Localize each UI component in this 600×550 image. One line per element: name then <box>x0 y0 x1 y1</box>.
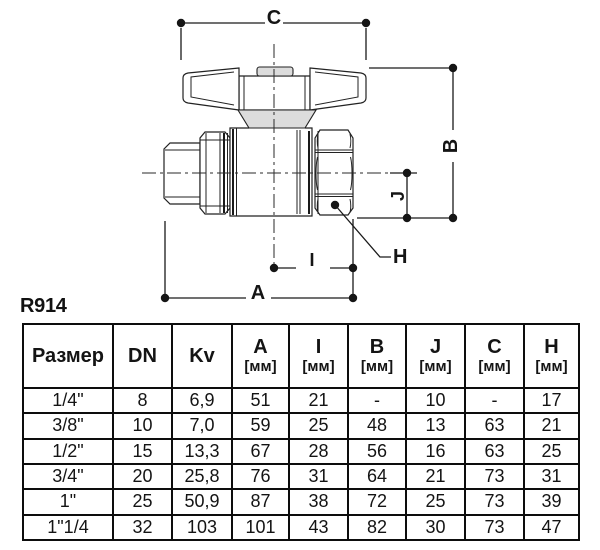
dim-label-b: B <box>440 139 462 153</box>
table-cell: 17 <box>524 388 579 413</box>
column-header: I[мм] <box>289 324 348 388</box>
column-header-unit: [мм] <box>407 359 464 375</box>
table-cell: 1"1/4 <box>23 515 113 540</box>
table-row: 1"2550,9873872257339 <box>23 489 579 514</box>
column-header: Размер <box>23 324 113 388</box>
column-header-label: DN <box>114 346 171 366</box>
column-header-label: Размер <box>24 346 112 366</box>
table-cell: 39 <box>524 489 579 514</box>
spec-table: РазмерDNKvA[мм]I[мм]B[мм]J[мм]C[мм]H[мм]… <box>22 323 580 541</box>
column-header-unit: [мм] <box>466 359 523 375</box>
table-cell: 1/2" <box>23 439 113 464</box>
table-cell: 50,9 <box>172 489 232 514</box>
spec-table-head: РазмерDNKvA[мм]I[мм]B[мм]J[мм]C[мм]H[мм] <box>23 324 579 388</box>
valve-outline <box>164 67 366 216</box>
valve-datasheet: C B J I A H R914 РазмерDNKvA[мм]I[мм]B[м… <box>0 0 600 550</box>
column-header: B[мм] <box>348 324 406 388</box>
table-cell: 25 <box>289 413 348 438</box>
table-row: 1"1/4321031014382307347 <box>23 515 579 540</box>
table-cell: 21 <box>289 388 348 413</box>
table-cell: 73 <box>465 489 524 514</box>
table-cell: 13 <box>406 413 465 438</box>
column-header-label: I <box>290 337 347 357</box>
table-cell: 15 <box>113 439 172 464</box>
table-cell: 6,9 <box>172 388 232 413</box>
valve-technical-drawing: C B J I A H <box>0 0 600 322</box>
table-cell: 3/8" <box>23 413 113 438</box>
table-cell: 10 <box>113 413 172 438</box>
column-header-label: Kv <box>173 346 231 366</box>
table-cell: 47 <box>524 515 579 540</box>
table-cell: 73 <box>465 515 524 540</box>
table-cell: 101 <box>232 515 289 540</box>
table-cell: 64 <box>348 464 406 489</box>
table-cell: 82 <box>348 515 406 540</box>
column-header-label: A <box>233 337 288 357</box>
table-cell: 13,3 <box>172 439 232 464</box>
table-cell: 38 <box>289 489 348 514</box>
table-cell: 21 <box>524 413 579 438</box>
dim-label-a: A <box>251 282 265 304</box>
table-cell: 3/4" <box>23 464 113 489</box>
handle-cap <box>257 67 293 76</box>
table-cell: 51 <box>232 388 289 413</box>
column-header-unit: [мм] <box>233 359 288 375</box>
column-header: C[мм] <box>465 324 524 388</box>
column-header-unit: [мм] <box>525 359 578 375</box>
column-header: DN <box>113 324 172 388</box>
column-header-label: B <box>349 337 405 357</box>
header-row: РазмерDNKvA[мм]I[мм]B[мм]J[мм]C[мм]H[мм] <box>23 324 579 388</box>
table-row: 3/4"2025,8763164217331 <box>23 464 579 489</box>
column-header-label: C <box>466 337 523 357</box>
dim-label-h: H <box>393 246 407 268</box>
column-header: H[мм] <box>524 324 579 388</box>
table-cell: 16 <box>406 439 465 464</box>
table-cell: 25 <box>113 489 172 514</box>
table-cell: 67 <box>232 439 289 464</box>
table-cell: 87 <box>232 489 289 514</box>
table-cell: 30 <box>406 515 465 540</box>
product-code: R914 <box>20 295 67 318</box>
table-cell: 31 <box>524 464 579 489</box>
column-header: A[мм] <box>232 324 289 388</box>
column-header-unit: [мм] <box>290 359 347 375</box>
column-header: J[мм] <box>406 324 465 388</box>
bonnet-flange <box>238 110 316 128</box>
table-cell: 21 <box>406 464 465 489</box>
dim-label-i: I <box>309 250 314 270</box>
table-cell: - <box>348 388 406 413</box>
column-header-unit: [мм] <box>349 359 405 375</box>
table-cell: 10 <box>406 388 465 413</box>
table-cell: 103 <box>172 515 232 540</box>
table-cell: 63 <box>465 413 524 438</box>
table-cell: 7,0 <box>172 413 232 438</box>
table-row: 1/4"86,95121-10-17 <box>23 388 579 413</box>
spec-table-body: 1/4"86,95121-10-173/8"107,05925481363211… <box>23 388 579 540</box>
table-cell: 1/4" <box>23 388 113 413</box>
table-cell: 32 <box>113 515 172 540</box>
table-cell: - <box>465 388 524 413</box>
table-cell: 73 <box>465 464 524 489</box>
table-cell: 25,8 <box>172 464 232 489</box>
table-cell: 76 <box>232 464 289 489</box>
column-header-label: J <box>407 337 464 357</box>
table-cell: 8 <box>113 388 172 413</box>
table-cell: 43 <box>289 515 348 540</box>
dim-label-j: J <box>388 191 408 201</box>
dim-label-c: C <box>267 7 281 29</box>
table-cell: 48 <box>348 413 406 438</box>
table-cell: 72 <box>348 489 406 514</box>
table-row: 1/2"1513,3672856166325 <box>23 439 579 464</box>
table-cell: 56 <box>348 439 406 464</box>
table-cell: 63 <box>465 439 524 464</box>
table-cell: 25 <box>524 439 579 464</box>
table-cell: 20 <box>113 464 172 489</box>
table-cell: 28 <box>289 439 348 464</box>
table-row: 3/8"107,0592548136321 <box>23 413 579 438</box>
table-cell: 1" <box>23 489 113 514</box>
table-cell: 31 <box>289 464 348 489</box>
table-cell: 59 <box>232 413 289 438</box>
column-header-label: H <box>525 337 578 357</box>
table-cell: 25 <box>406 489 465 514</box>
column-header: Kv <box>172 324 232 388</box>
